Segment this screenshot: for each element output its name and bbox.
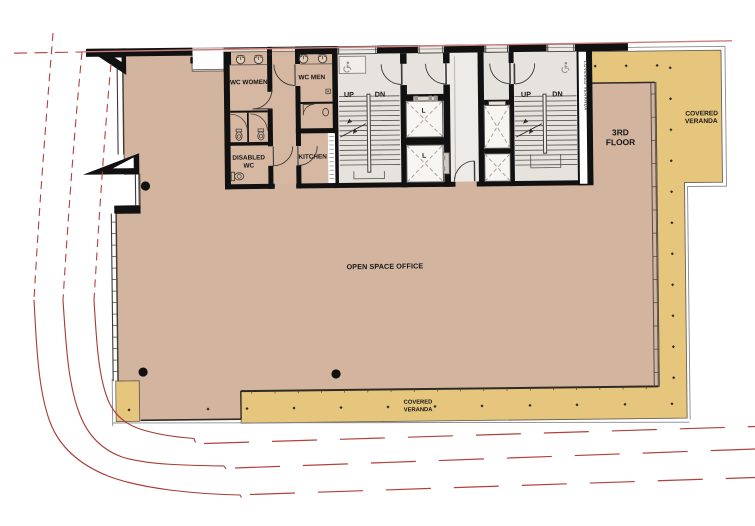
svg-text:FLOOR: FLOOR [606, 137, 635, 147]
svg-text:DISABLED: DISABLED [232, 154, 265, 161]
svg-text:COVERED: COVERED [404, 398, 433, 405]
svg-text:VERANDA: VERANDA [404, 407, 434, 413]
svg-text:KITCHEN: KITCHEN [298, 153, 327, 160]
svg-text:WC WOMEN: WC WOMEN [230, 79, 268, 86]
svg-text:COVERED: COVERED [685, 110, 718, 117]
svg-text:DN: DN [375, 90, 385, 99]
svg-text:L: L [422, 108, 426, 115]
svg-text:WC MEN: WC MEN [298, 74, 325, 81]
svg-text:VERANDA: VERANDA [685, 118, 718, 125]
svg-text:WC: WC [243, 162, 254, 169]
svg-text:COVERED VERANDA: COVERED VERANDA [583, 61, 589, 111]
svg-text:UP: UP [521, 90, 531, 99]
svg-text:L: L [422, 153, 426, 160]
svg-text:UP: UP [344, 90, 354, 99]
svg-text:DN: DN [552, 89, 562, 98]
svg-text:3RD: 3RD [612, 127, 629, 137]
svg-text:OPEN SPACE OFFICE: OPEN SPACE OFFICE [347, 261, 424, 271]
